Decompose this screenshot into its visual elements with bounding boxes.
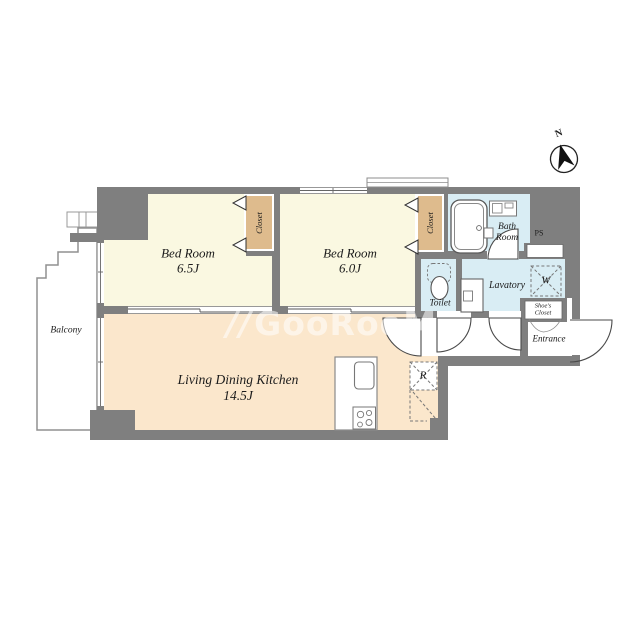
bedroom2-name: Bed Room	[323, 246, 377, 261]
closet-bedroom1-label: Closet	[254, 212, 264, 234]
ldk-size: 14.5J	[178, 388, 299, 404]
bathroom-label: Bath Room	[496, 222, 518, 244]
watermark: //GooRooM	[226, 304, 437, 343]
bathroom-line1: Bath	[496, 222, 518, 233]
bedroom2-label: Bed Room 6.0J	[323, 246, 377, 277]
lavatory-label: Lavatory	[489, 280, 525, 292]
floor-plan-canvas: Bed Room 6.5J Bed Room 6.0J Living Dinin…	[0, 0, 640, 640]
ldk-name: Living Dining Kitchen	[178, 372, 299, 388]
bathtub	[451, 200, 487, 253]
bedroom1-name: Bed Room	[161, 246, 215, 261]
entrance-label: Entrance	[533, 334, 566, 345]
pipe-space-box	[527, 245, 563, 258]
bedroom1-size: 6.5J	[161, 261, 215, 276]
washing-machine-label: W	[541, 275, 550, 288]
balcony-upper-box	[67, 212, 98, 227]
balcony-label: Balcony	[50, 325, 81, 336]
lavatory-basin	[461, 279, 483, 312]
bedroom1-floor-ext	[104, 240, 150, 306]
watermark-text: GooRooM	[254, 304, 437, 343]
pipe-space-label: PS	[535, 228, 544, 237]
watermark-prefix: //	[226, 304, 252, 343]
refrigerator-label: R	[420, 370, 427, 383]
lavatory-door-swing	[489, 318, 521, 350]
toilet-bowl	[431, 277, 448, 300]
bath-shelf	[484, 228, 493, 238]
balcony-outline	[37, 212, 98, 430]
bathroom-line2: Room	[496, 233, 518, 244]
ldk-label: Living Dining Kitchen 14.5J	[178, 372, 299, 404]
bedroom1-label: Bed Room 6.5J	[161, 246, 215, 277]
closet-bedroom2-label: Closet	[425, 212, 435, 234]
kitchen-stove	[353, 407, 376, 429]
shoes-closet-label: Shoe's Closet	[535, 303, 552, 318]
shoes-closet-line1: Shoe's	[535, 303, 552, 310]
toilet-door-swing	[437, 318, 471, 352]
bedroom2-size: 6.0J	[323, 261, 377, 276]
compass-icon	[547, 141, 580, 176]
kitchen-sink	[355, 362, 375, 389]
shoes-closet-line2: Closet	[535, 310, 552, 317]
